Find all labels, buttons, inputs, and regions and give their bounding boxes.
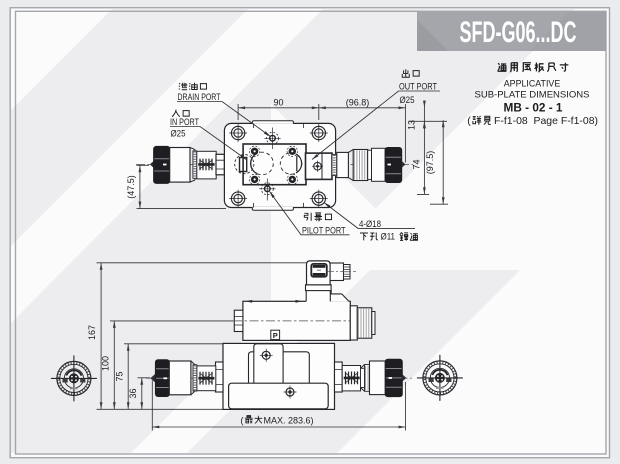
svg-text:SFD-G06...DC: SFD-G06...DC	[460, 17, 577, 50]
svg-text:DRAIN PORT: DRAIN PORT	[178, 92, 221, 102]
svg-text:Ø25: Ø25	[400, 95, 415, 105]
svg-text:100: 100	[101, 356, 111, 371]
svg-text:90: 90	[273, 97, 283, 107]
svg-text:(: (	[467, 115, 471, 127]
svg-text:(96.8): (96.8)	[346, 97, 370, 107]
svg-text:P: P	[273, 331, 278, 340]
svg-text:Ø11: Ø11	[381, 232, 396, 242]
svg-text:(47.5): (47.5)	[126, 175, 136, 199]
svg-text:OUT PORT: OUT PORT	[399, 82, 437, 92]
svg-text:SUB-PLATE DIMENSIONS: SUB-PLATE DIMENSIONS	[475, 89, 590, 100]
svg-text:167: 167	[87, 325, 97, 340]
svg-text:IN PORT: IN PORT	[170, 117, 199, 127]
svg-text:75: 75	[115, 371, 125, 381]
svg-text:(: (	[241, 415, 244, 425]
svg-text:F-f1-08 Page F-f1-08): F-f1-08 Page F-f1-08)	[494, 115, 598, 127]
svg-text:Ø25: Ø25	[171, 129, 186, 139]
svg-text:MB - 02 - 1: MB - 02 - 1	[504, 103, 564, 115]
svg-text:APPLICATIVE: APPLICATIVE	[504, 78, 561, 89]
svg-text:(97.5): (97.5)	[425, 151, 435, 175]
svg-text:13: 13	[407, 120, 417, 130]
svg-text:74: 74	[412, 159, 422, 169]
svg-text:PILOT PORT: PILOT PORT	[302, 226, 346, 236]
svg-text:4-Ø18: 4-Ø18	[359, 219, 381, 229]
svg-text:36: 36	[128, 388, 138, 398]
svg-text:MAX. 283.6): MAX. 283.6)	[264, 415, 314, 425]
